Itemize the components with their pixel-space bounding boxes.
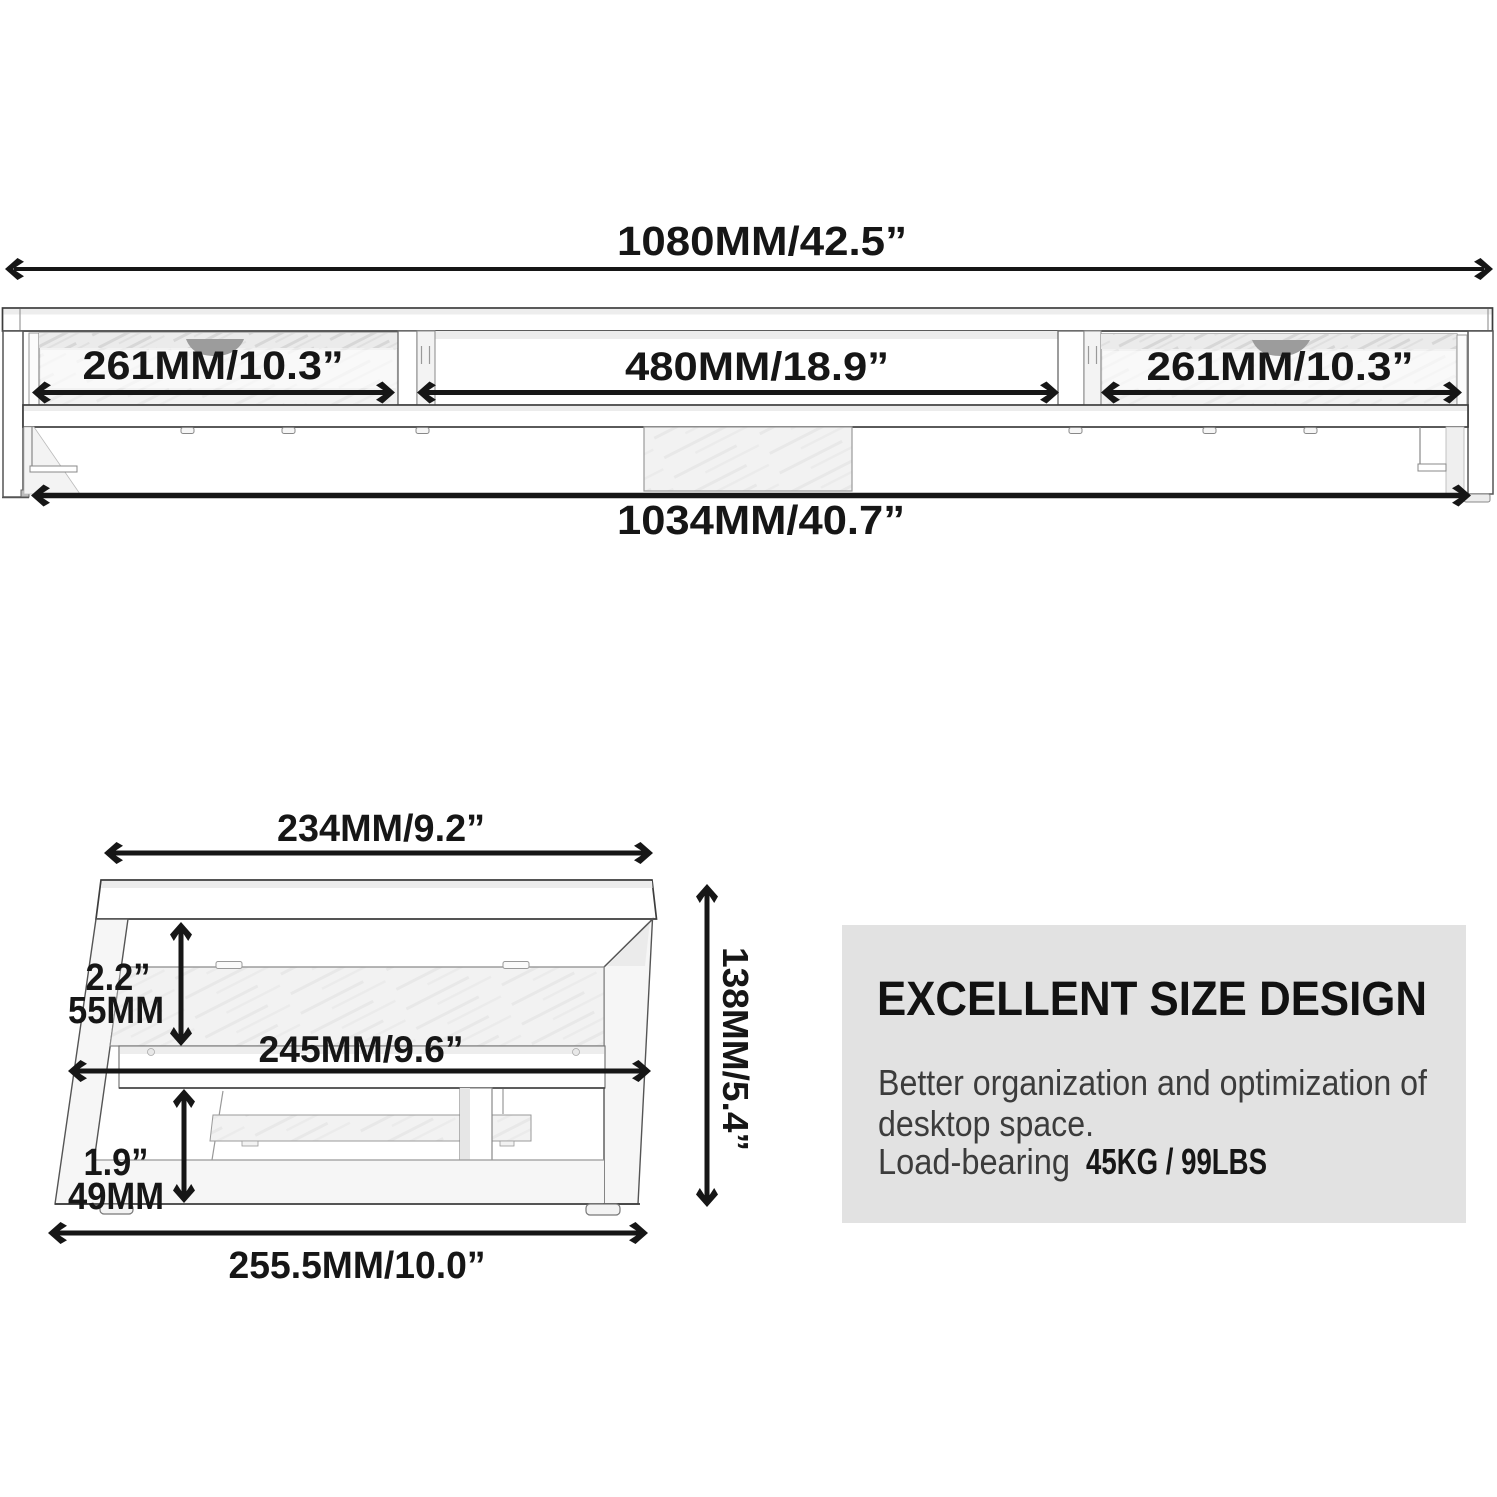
svg-text:desktop space.: desktop space. (878, 1103, 1094, 1144)
svg-text:480MM/18.9”: 480MM/18.9” (625, 345, 889, 389)
svg-text:138MM/5.4”: 138MM/5.4” (715, 947, 756, 1151)
svg-text:1034MM/40.7”: 1034MM/40.7” (617, 497, 905, 543)
svg-text:1080MM/42.5”: 1080MM/42.5” (617, 218, 907, 264)
svg-text:45KG / 99LBS: 45KG / 99LBS (1086, 1141, 1267, 1182)
svg-text:261MM/10.3”: 261MM/10.3” (83, 344, 344, 388)
svg-text:255.5MM/10.0”: 255.5MM/10.0” (229, 1245, 486, 1287)
svg-text:EXCELLENT SIZE DESIGN: EXCELLENT SIZE DESIGN (877, 973, 1427, 1026)
svg-text:Better organization and optimi: Better organization and optimization of (878, 1062, 1428, 1103)
svg-text:Load-bearing: Load-bearing (878, 1141, 1070, 1182)
svg-text:49MM: 49MM (68, 1176, 164, 1218)
svg-text:234MM/9.2”: 234MM/9.2” (277, 808, 485, 850)
svg-text:245MM/9.6”: 245MM/9.6” (259, 1029, 464, 1070)
svg-text:55MM: 55MM (68, 990, 164, 1032)
svg-text:261MM/10.3”: 261MM/10.3” (1147, 345, 1414, 389)
